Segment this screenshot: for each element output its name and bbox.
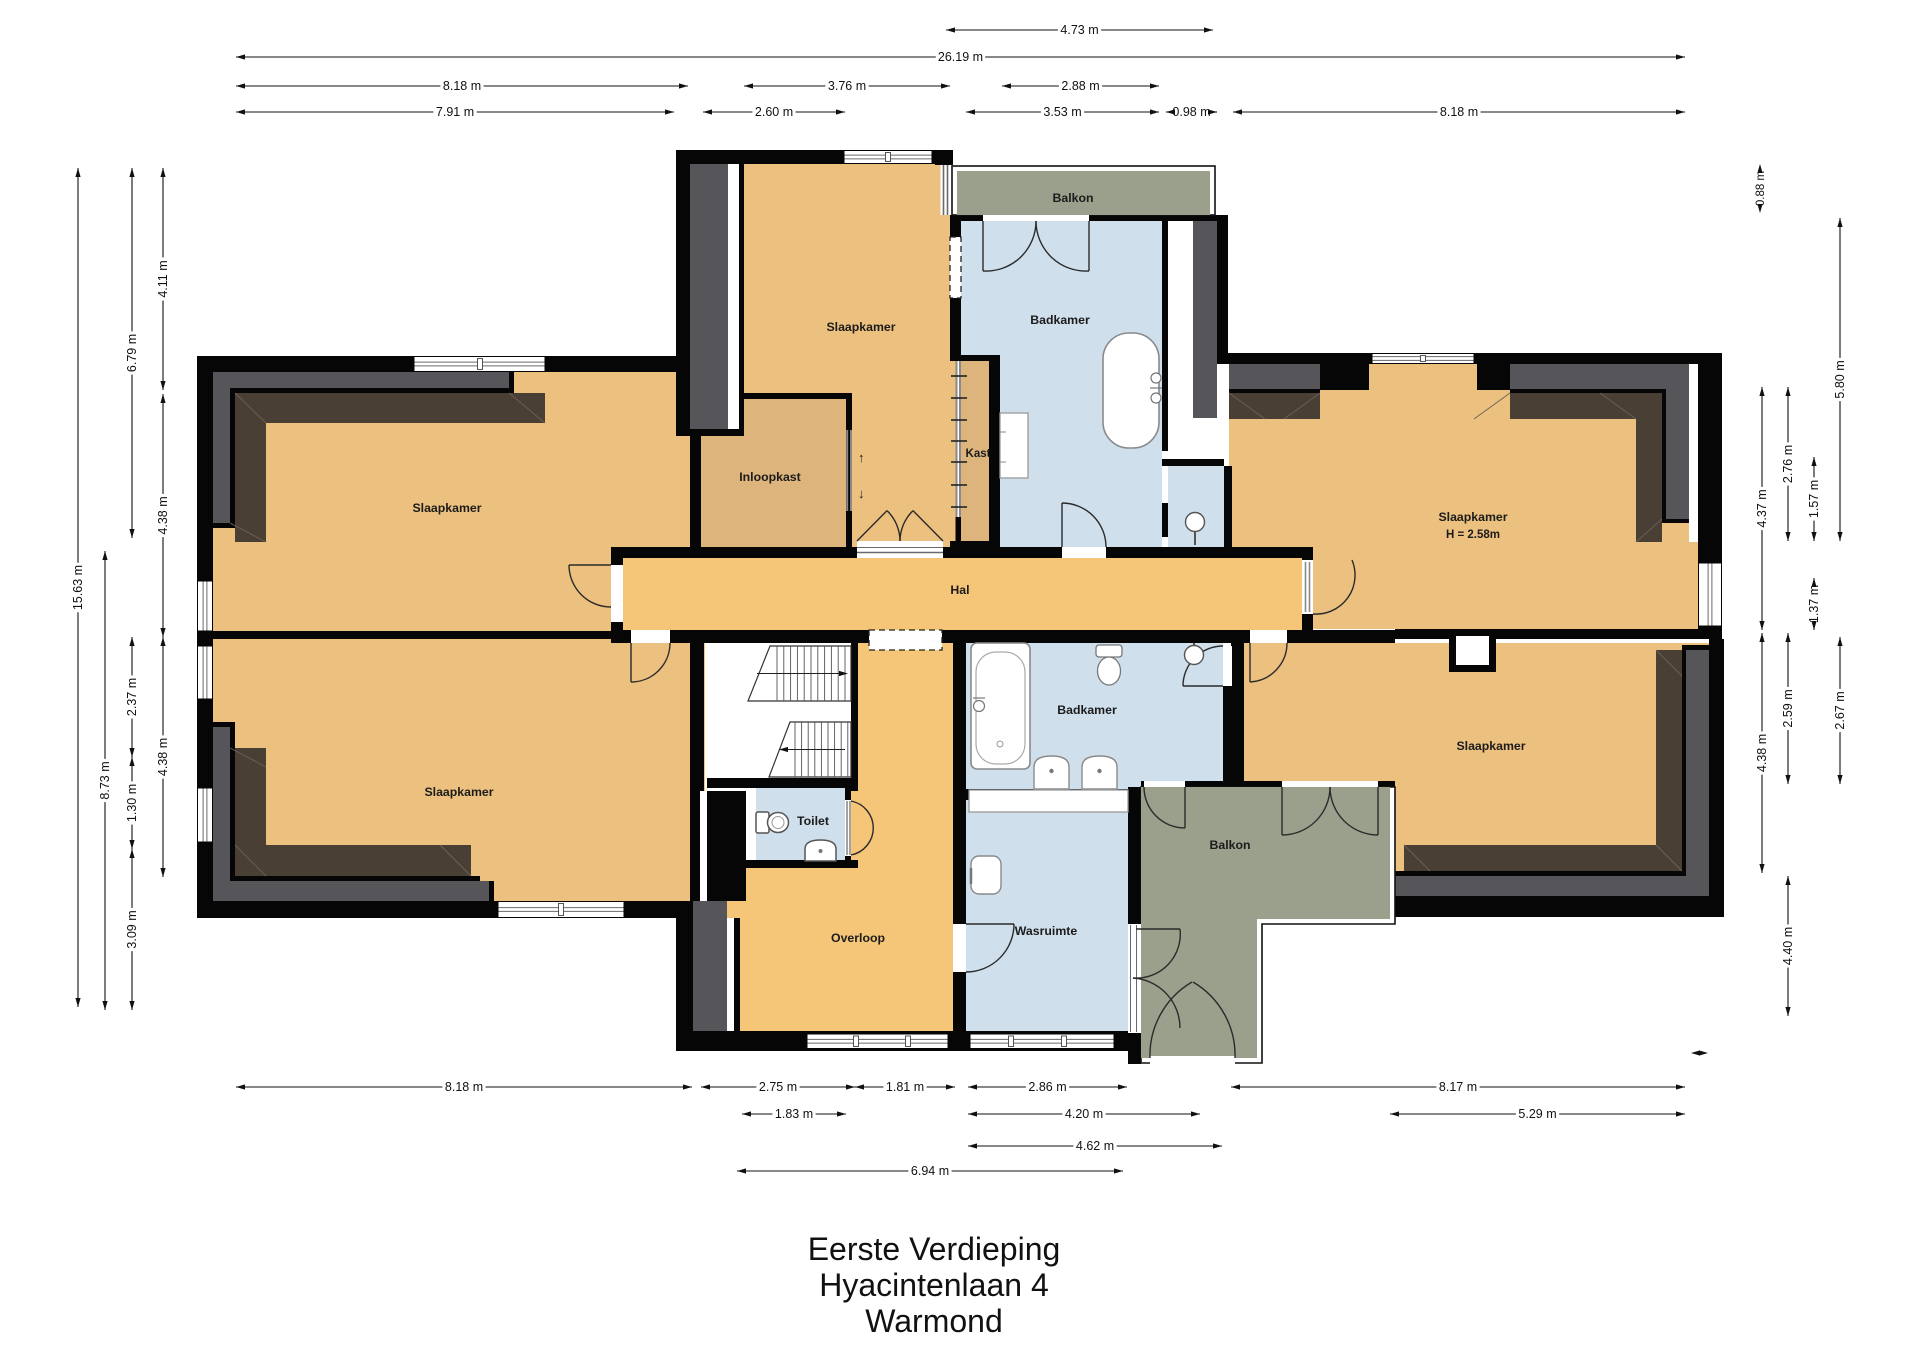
svg-text:Slaapkamer: Slaapkamer bbox=[1438, 510, 1507, 524]
svg-text:4.11 m: 4.11 m bbox=[156, 260, 170, 297]
svg-text:2.88 m: 2.88 m bbox=[1061, 79, 1099, 93]
svg-text:6.94 m: 6.94 m bbox=[911, 1164, 949, 1178]
svg-text:Kast: Kast bbox=[966, 448, 991, 460]
svg-text:8.18 m: 8.18 m bbox=[443, 79, 481, 93]
svg-text:5.29 m: 5.29 m bbox=[1518, 1107, 1556, 1121]
svg-text:4.20 m: 4.20 m bbox=[1065, 1107, 1103, 1121]
svg-text:0.88 m: 0.88 m bbox=[1755, 171, 1767, 206]
svg-text:7.91 m: 7.91 m bbox=[436, 105, 474, 119]
svg-text:1.37 m: 1.37 m bbox=[1807, 585, 1821, 623]
svg-text:4.38 m: 4.38 m bbox=[1755, 734, 1769, 772]
svg-text:↓: ↓ bbox=[858, 486, 865, 501]
svg-text:8.17 m: 8.17 m bbox=[1439, 1080, 1477, 1094]
svg-text:1.81 m: 1.81 m bbox=[886, 1080, 924, 1094]
svg-text:Toilet: Toilet bbox=[797, 814, 829, 828]
svg-text:4.38 m: 4.38 m bbox=[156, 738, 170, 776]
svg-text:2.59 m: 2.59 m bbox=[1781, 689, 1795, 727]
svg-text:Slaapkamer: Slaapkamer bbox=[424, 785, 493, 799]
svg-text:2.86 m: 2.86 m bbox=[1028, 1080, 1066, 1094]
svg-text:Balkon: Balkon bbox=[1210, 838, 1251, 852]
svg-text:8.18 m: 8.18 m bbox=[1440, 105, 1478, 119]
svg-text:2.75 m: 2.75 m bbox=[759, 1080, 797, 1094]
svg-text:1.57 m: 1.57 m bbox=[1807, 480, 1821, 518]
svg-text:Inloopkast: Inloopkast bbox=[739, 470, 801, 484]
svg-text:3.76 m: 3.76 m bbox=[828, 79, 866, 93]
svg-text:4.40 m: 4.40 m bbox=[1781, 927, 1795, 965]
svg-text:Hal: Hal bbox=[950, 583, 969, 597]
svg-text:0.98 m: 0.98 m bbox=[1172, 105, 1210, 119]
svg-text:4.38 m: 4.38 m bbox=[156, 496, 170, 534]
svg-text:8.73 m: 8.73 m bbox=[98, 761, 112, 799]
svg-text:2.76 m: 2.76 m bbox=[1781, 445, 1795, 483]
svg-text:1.83 m: 1.83 m bbox=[775, 1107, 813, 1121]
svg-text:15.63 m: 15.63 m bbox=[71, 565, 85, 610]
svg-text:4.73 m: 4.73 m bbox=[1060, 23, 1098, 37]
svg-text:Overloop: Overloop bbox=[831, 931, 885, 945]
svg-text:3.09 m: 3.09 m bbox=[125, 910, 139, 948]
svg-text:4.37 m: 4.37 m bbox=[1755, 489, 1769, 527]
svg-text:5.80 m: 5.80 m bbox=[1833, 360, 1847, 398]
svg-text:Slaapkamer: Slaapkamer bbox=[826, 320, 895, 334]
svg-text:H = 2.58m: H = 2.58m bbox=[1446, 529, 1500, 541]
svg-text:8.18 m: 8.18 m bbox=[445, 1080, 483, 1094]
svg-text:Eerste Verdieping: Eerste Verdieping bbox=[808, 1231, 1061, 1267]
svg-text:6.79 m: 6.79 m bbox=[125, 334, 139, 372]
svg-text:Warmond: Warmond bbox=[865, 1303, 1003, 1339]
svg-text:Slaapkamer: Slaapkamer bbox=[1456, 739, 1525, 753]
svg-text:2.60 m: 2.60 m bbox=[755, 105, 793, 119]
svg-text:↑: ↑ bbox=[858, 450, 865, 465]
svg-text:Balkon: Balkon bbox=[1053, 191, 1094, 205]
svg-text:2.37 m: 2.37 m bbox=[125, 678, 139, 716]
svg-text:Wasruimte: Wasruimte bbox=[1015, 924, 1078, 938]
svg-text:Badkamer: Badkamer bbox=[1030, 313, 1090, 327]
svg-text:Hyacintenlaan 4: Hyacintenlaan 4 bbox=[819, 1267, 1048, 1303]
svg-text:26.19 m: 26.19 m bbox=[938, 50, 983, 64]
svg-text:Slaapkamer: Slaapkamer bbox=[412, 501, 481, 515]
svg-text:3.53 m: 3.53 m bbox=[1043, 105, 1081, 119]
svg-text:1.30 m: 1.30 m bbox=[125, 784, 139, 822]
svg-text:Badkamer: Badkamer bbox=[1057, 703, 1117, 717]
svg-text:2.67 m: 2.67 m bbox=[1833, 691, 1847, 729]
svg-text:4.62 m: 4.62 m bbox=[1076, 1139, 1114, 1153]
